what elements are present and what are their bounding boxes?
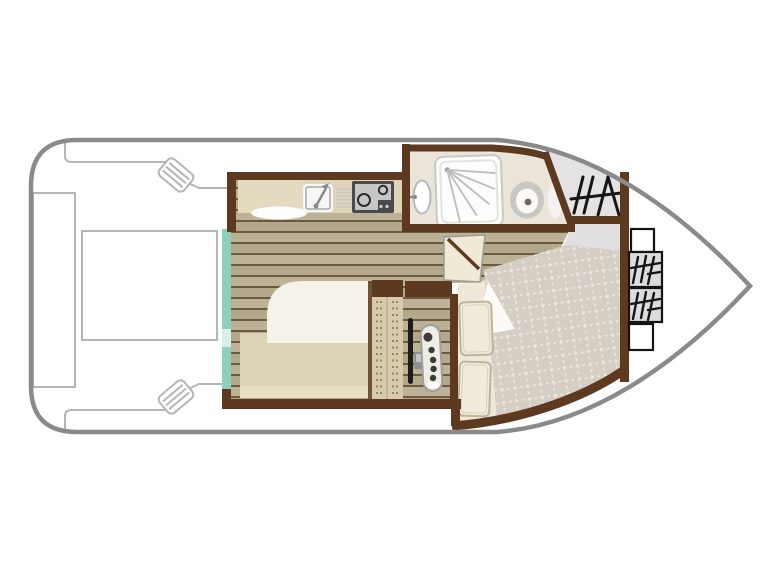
- wardrobe-unit: [368, 280, 403, 400]
- boat-floor-plan: [0, 0, 768, 576]
- stove: [352, 181, 394, 213]
- wall-saloon-top: [227, 172, 408, 180]
- wall-bathroom-bottom: [402, 224, 575, 232]
- stove-knob: [379, 205, 382, 208]
- stove-knob: [385, 205, 388, 208]
- bow-cabin-door: [444, 235, 485, 282]
- wall-saloon-bottom: [222, 399, 461, 409]
- wall-saloon-left: [227, 172, 236, 232]
- cabinet-top: [372, 280, 403, 297]
- steering-wheel: [408, 318, 413, 384]
- floor-plan-canvas: [0, 0, 768, 576]
- instrument-console: [420, 325, 442, 392]
- duvet: [267, 281, 368, 343]
- helm-dashboard-cabinet: [405, 281, 452, 297]
- wall-bow-right: [620, 172, 629, 382]
- bow-locker-small-bottom: [629, 324, 653, 350]
- shower: [435, 155, 503, 228]
- sliding-door-glass: [222, 229, 231, 389]
- pillow: [459, 301, 493, 355]
- sink: [303, 184, 333, 212]
- galley-rug: [251, 207, 307, 220]
- bow-locker-small-top: [631, 229, 654, 252]
- wall-bow-top: [571, 216, 625, 224]
- pillow: [458, 361, 491, 416]
- wall-bathroom-left: [402, 144, 410, 232]
- mattress-foot-band: [240, 386, 368, 398]
- wall-saloon-right: [450, 294, 458, 401]
